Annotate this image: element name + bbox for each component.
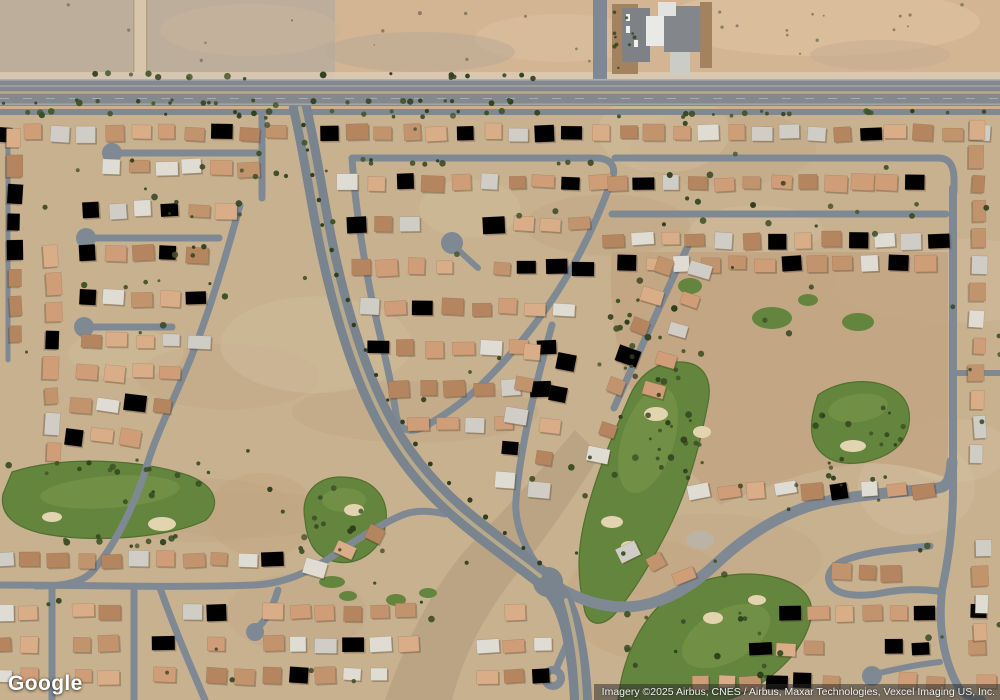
desert-area	[0, 0, 1000, 79]
map-viewport[interactable]: Google Imagery ©2025 Airbus, CNES / Airb…	[0, 0, 1000, 700]
imagery-attribution: Imagery ©2025 Airbus, CNES / Airbus, Max…	[594, 684, 1000, 700]
satellite-imagery[interactable]	[0, 0, 1000, 700]
google-logo[interactable]: Google	[8, 672, 83, 696]
attribution-text: Imagery ©2025 Airbus, CNES / Airbus, Max…	[602, 686, 995, 698]
